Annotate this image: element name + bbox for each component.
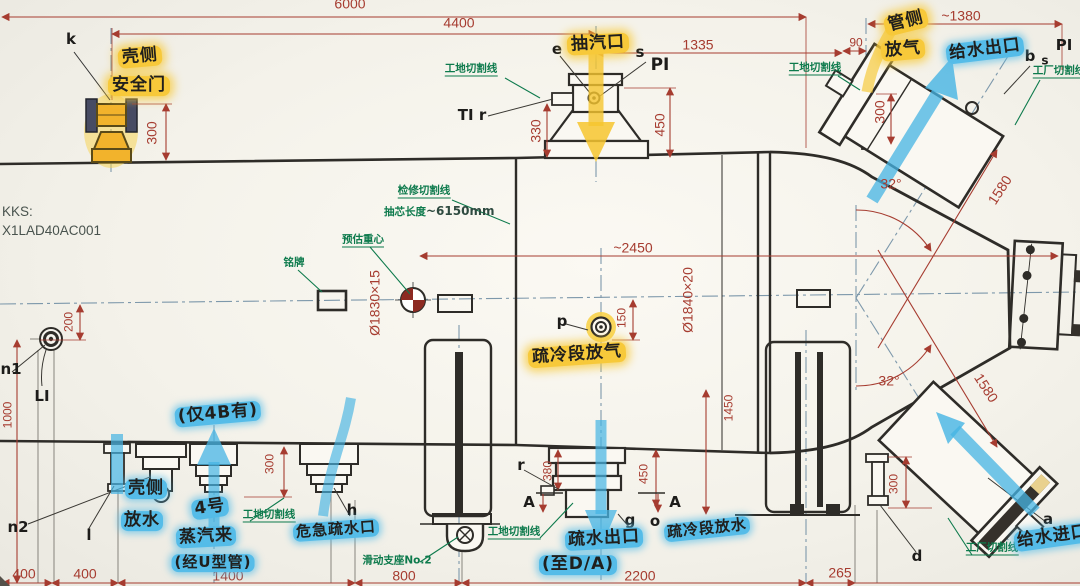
dim-angle-32-top: 32° [880, 177, 901, 192]
note-site-cutting-line-bottom-left: 工地切割线 [243, 509, 296, 522]
dim-300-vent: 300 [873, 100, 888, 123]
dim-2450: ~2450 [613, 241, 652, 256]
dim-300-bottom-left: 300 [264, 454, 277, 474]
engineering-drawing-page: KKS: X1LAD40AC001 6000 4400 1335 ~1380 9… [0, 0, 1080, 586]
dim-450-top: 450 [653, 113, 668, 136]
port-label-li: LI [34, 389, 49, 405]
dim-800: 800 [392, 569, 415, 584]
dim-380: 380 [542, 461, 555, 481]
note-factory-cutting-line-bottom: 工厂切割线 [966, 542, 1019, 555]
hand-note-no4-line3: (经U型管) [172, 554, 255, 572]
note-site-cutting-line-right: 工地切割线 [789, 62, 842, 75]
dim-1335: 1335 [682, 38, 713, 53]
support-saddle-2 [735, 342, 860, 515]
note-factory-cutting-line-top: 工厂切割线 [1033, 65, 1080, 78]
note-tube-pull-length-prefix: 抽芯长度 [384, 206, 426, 218]
dim-shell-od-right: Ø1840×20 [681, 267, 696, 333]
hand-note-no4-line2: 蒸汽来 [176, 526, 237, 549]
section-label-a-left: A [523, 495, 535, 511]
port-label-d: d [912, 549, 923, 565]
dim-1380: ~1380 [941, 9, 980, 24]
port-label-h: h [347, 503, 358, 519]
port-label-l: l [86, 528, 91, 544]
dim-90: 90 [849, 37, 862, 50]
hand-note-shell-side-drain-2: 放水 [121, 511, 163, 531]
dim-400-b: 400 [73, 567, 96, 582]
dim-2200: 2200 [624, 569, 655, 584]
note-tube-pull-length-value: ~6150mm [426, 204, 494, 218]
nameplate-box [318, 290, 830, 312]
hand-note-safety-valve: 安全门 [108, 76, 170, 96]
note-site-cutting-line-top: 工地切割线 [445, 63, 498, 76]
dim-330: 330 [529, 119, 544, 142]
drain-cooling-vent-boss-p [586, 312, 616, 342]
dim-angle-32-bottom: 32° [878, 374, 899, 389]
port-label-pi-top: PI [651, 57, 670, 75]
port-label-b: b [1025, 49, 1036, 65]
note-tube-pull-length: 抽芯长度~6150mm [384, 203, 494, 220]
dim-1000: 1000 [2, 402, 15, 429]
dim-265: 265 [828, 566, 851, 581]
port-label-s-top: s [636, 45, 645, 61]
dim-6000: 6000 [334, 0, 365, 11]
hand-note-vent: 放气 [880, 38, 926, 62]
dim-400-a: 400 [12, 567, 35, 582]
section-label-a-right: A [669, 495, 681, 511]
port-label-p: p [557, 314, 568, 330]
dim-450-bottom: 450 [638, 464, 651, 484]
end-cover-flange [1009, 241, 1080, 353]
kks-label: KKS: [2, 205, 33, 219]
port-label-n2: n2 [7, 520, 28, 536]
dim-150: 150 [616, 308, 629, 328]
kks-code: X1LAD40AC001 [2, 224, 101, 238]
hand-note-extraction-port: 抽汽口 [567, 32, 630, 55]
dim-1450: 1450 [723, 395, 736, 422]
hand-note-drain-outlet-dest: (至D/A) [539, 555, 617, 575]
safety-valve-k [74, 52, 138, 168]
port-label-pi-right: PI [1056, 38, 1073, 54]
note-service-cutting-line: 检修切割线 [398, 185, 451, 198]
hand-note-shell-side-drain-1: 壳侧 [125, 479, 167, 499]
port-label-k: k [66, 32, 76, 48]
port-label-n1: n1 [0, 362, 21, 378]
note-sliding-support-no2: 滑动支座No.2 [362, 555, 431, 566]
port-label-e: e [552, 42, 562, 58]
dim-4400: 4400 [443, 16, 474, 31]
dim-300-bottom-right: 300 [888, 474, 901, 494]
port-label-o: o [650, 514, 660, 530]
note-site-cutting-line-bottom-mid: 工地切割线 [488, 526, 541, 539]
note-estimated-cog: 预估重心 [342, 234, 384, 247]
dim-300-safety-valve: 300 [145, 121, 160, 144]
hand-note-drain-outlet: 疏水出口 [565, 527, 644, 551]
center-of-gravity-symbol [395, 282, 431, 318]
dim-200: 200 [63, 312, 76, 332]
dim-shell-od-left: Ø1830×15 [368, 270, 383, 336]
hand-note-shell-side: 壳侧 [117, 45, 163, 69]
outlet-bolt-hole [966, 102, 978, 114]
photo-corner-shadow [0, 576, 10, 586]
note-nameplate: 铭牌 [284, 257, 305, 268]
port-label-r: r [517, 458, 524, 474]
port-label-ti-r: TI r [458, 108, 486, 124]
